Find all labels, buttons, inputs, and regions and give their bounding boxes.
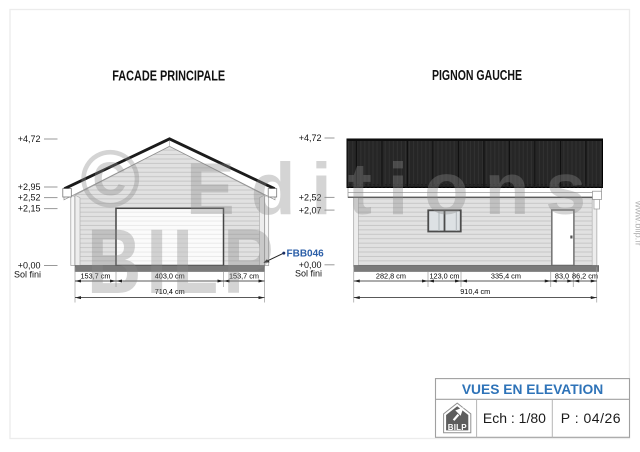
svg-text:910,4 cm: 910,4 cm (460, 287, 490, 296)
svg-text:BILP: BILP (448, 423, 467, 432)
svg-text:86,2 cm: 86,2 cm (572, 272, 598, 281)
svg-text:Sol fini: Sol fini (295, 269, 322, 279)
svg-text:www.bilp.fr: www.bilp.fr (634, 200, 640, 246)
svg-text:+4,72: +4,72 (18, 134, 41, 144)
svg-text:BILP: BILP (87, 210, 278, 313)
svg-text:+4,72: +4,72 (299, 133, 322, 143)
svg-text:P : 04/26: P : 04/26 (561, 410, 621, 426)
svg-text:335,4 cm: 335,4 cm (491, 272, 521, 281)
svg-text:FACADE PRINCIPALE: FACADE PRINCIPALE (112, 69, 225, 85)
svg-text:+2,15: +2,15 (18, 204, 41, 214)
svg-text:VUES EN ELEVATION: VUES EN ELEVATION (462, 382, 603, 397)
svg-text:282,8 cm: 282,8 cm (376, 272, 406, 281)
svg-text:PIGNON GAUCHE: PIGNON GAUCHE (432, 68, 522, 84)
svg-text:123,0 cm: 123,0 cm (429, 272, 459, 281)
svg-text:Sol fini: Sol fini (14, 269, 41, 279)
svg-text:Ech : 1/80: Ech : 1/80 (483, 410, 546, 426)
svg-text:83,0: 83,0 (555, 272, 569, 281)
svg-text:FBB046: FBB046 (287, 249, 325, 260)
svg-text:+2,52: +2,52 (18, 193, 41, 203)
svg-text:+2,95: +2,95 (18, 182, 41, 192)
